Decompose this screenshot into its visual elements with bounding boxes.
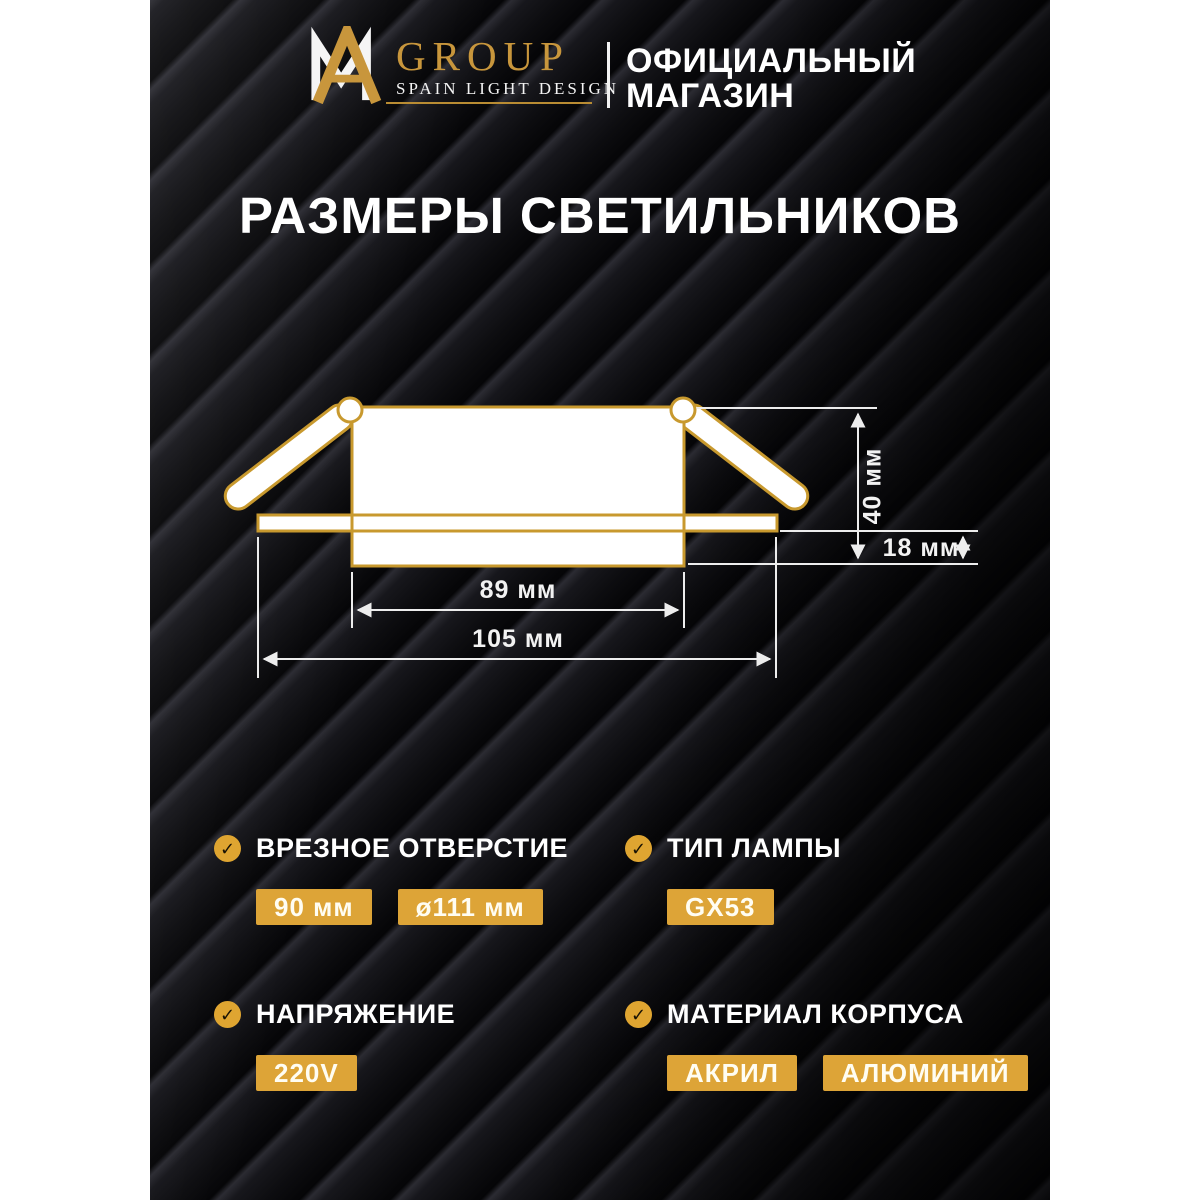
spring-clip-left (220, 400, 358, 515)
product-infographic: GROUP SPAIN LIGHT DESIGN ОФИЦИАЛЬНЫЙ МАГ… (0, 0, 1200, 1200)
check-icon: ✓ (625, 1001, 652, 1028)
striped-background: GROUP SPAIN LIGHT DESIGN ОФИЦИАЛЬНЫЙ МАГ… (150, 0, 1050, 1200)
dim-18-label: 18 мм (883, 534, 960, 562)
spec-body-material: ✓ МАТЕРИАЛ КОРПУСА АКРИЛ АЛЮМИНИЙ (625, 999, 1028, 1091)
check-icon: ✓ (214, 1001, 241, 1028)
hinge-pin-left (338, 398, 362, 422)
spec-lamp-type: ✓ ТИП ЛАМПЫ GX53 (625, 833, 841, 925)
spec-label: МАТЕРИАЛ КОРПУСА (667, 999, 964, 1030)
spec-value-badge: 220V (256, 1055, 357, 1091)
check-icon: ✓ (625, 835, 652, 862)
spring-clip-right (675, 400, 813, 515)
spec-label: ТИП ЛАМПЫ (667, 833, 841, 864)
dim-89-label: 89 мм (480, 576, 557, 604)
spec-value-badge: АКРИЛ (667, 1055, 797, 1091)
spec-cutout-hole: ✓ ВРЕЗНОЕ ОТВЕРСТИЕ 90 мм ø111 мм (214, 833, 568, 925)
spec-value-badge: АЛЮМИНИЙ (823, 1055, 1028, 1091)
lamp-body (352, 407, 684, 566)
spec-label: ВРЕЗНОЕ ОТВЕРСТИЕ (256, 833, 568, 864)
spec-label: НАПРЯЖЕНИЕ (256, 999, 455, 1030)
spec-value-badge: ø111 мм (398, 889, 543, 925)
dim-105-label: 105 мм (472, 625, 564, 653)
spec-value-badge: GX53 (667, 889, 774, 925)
dim-40-label: 40 мм (859, 448, 887, 525)
spec-value-badge: 90 мм (256, 889, 372, 925)
hinge-pin-right (671, 398, 695, 422)
spec-voltage: ✓ НАПРЯЖЕНИЕ 220V (214, 999, 455, 1091)
check-icon: ✓ (214, 835, 241, 862)
lamp-flange (258, 515, 777, 531)
